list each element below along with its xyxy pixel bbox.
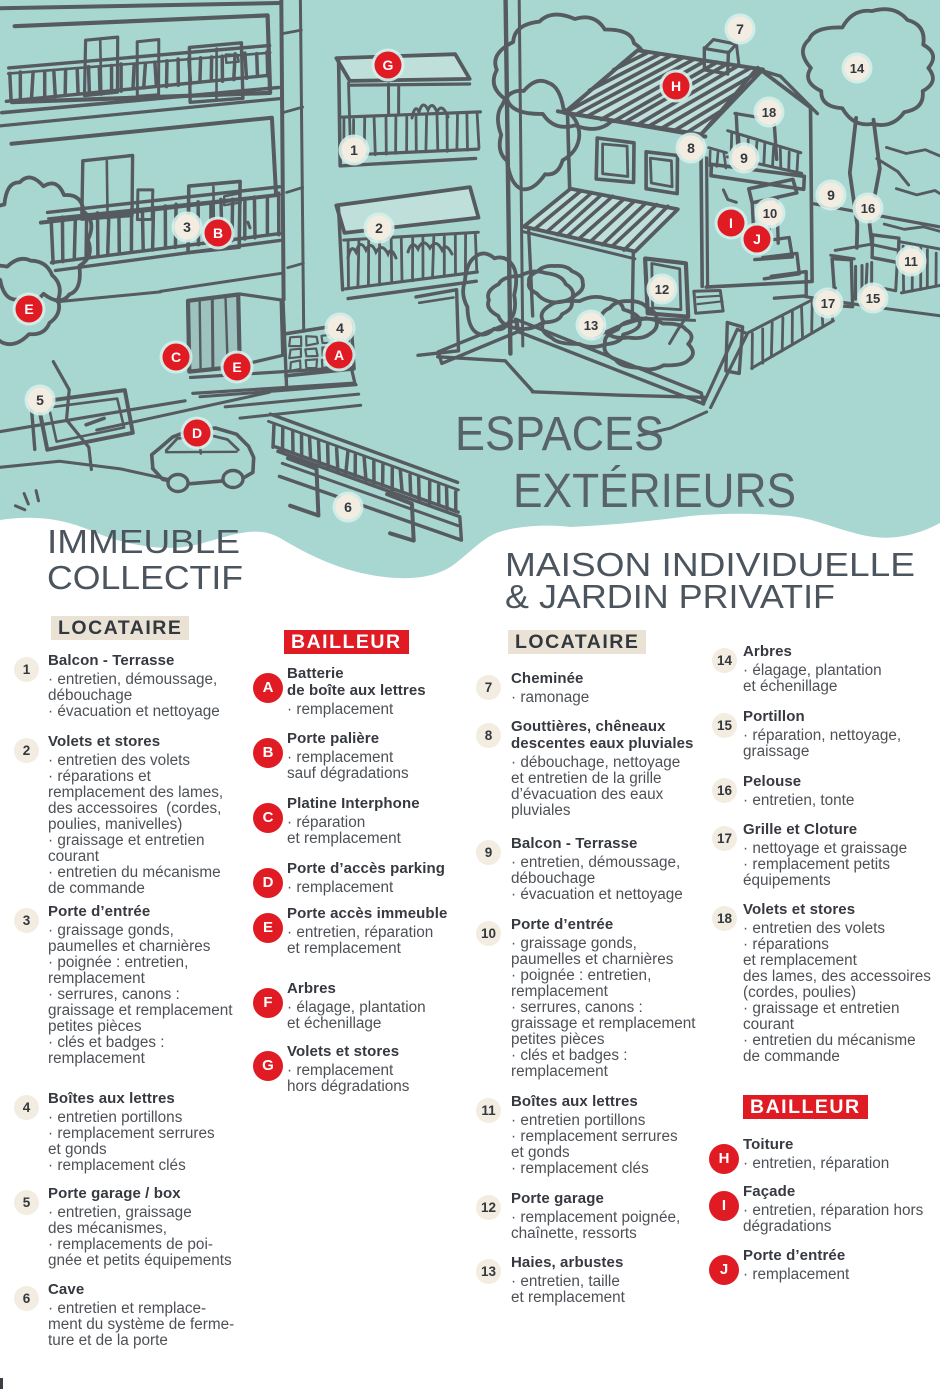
- svg-text:10: 10: [763, 206, 777, 221]
- svg-text:J: J: [753, 231, 761, 247]
- svg-text:11: 11: [904, 254, 918, 269]
- svg-text:4: 4: [336, 320, 344, 336]
- svg-text:18: 18: [762, 105, 776, 120]
- svg-text:E: E: [232, 359, 241, 375]
- svg-text:I: I: [729, 215, 733, 231]
- svg-text:15: 15: [866, 291, 880, 306]
- svg-text:ESPACES: ESPACES: [455, 408, 664, 461]
- svg-text:9: 9: [827, 187, 835, 203]
- svg-text:9: 9: [740, 150, 748, 166]
- svg-text:13: 13: [584, 318, 598, 333]
- svg-text:8: 8: [687, 140, 695, 156]
- svg-text:E: E: [24, 301, 33, 317]
- svg-text:A: A: [334, 347, 344, 363]
- svg-text:G: G: [383, 57, 394, 73]
- svg-text:17: 17: [821, 296, 835, 311]
- svg-text:7: 7: [736, 21, 744, 37]
- svg-text:6: 6: [344, 499, 352, 515]
- svg-text:1: 1: [350, 142, 358, 158]
- svg-text:5: 5: [36, 392, 44, 408]
- svg-text:3: 3: [183, 219, 191, 235]
- svg-text:2: 2: [375, 220, 383, 236]
- svg-text:B: B: [213, 225, 223, 241]
- svg-text:C: C: [171, 349, 181, 365]
- svg-text:H: H: [671, 78, 681, 94]
- svg-text:12: 12: [655, 282, 669, 297]
- svg-text:EXTÉRIEURS: EXTÉRIEURS: [513, 465, 796, 518]
- svg-text:D: D: [192, 425, 202, 441]
- svg-text:14: 14: [850, 61, 865, 76]
- svg-text:16: 16: [861, 201, 875, 216]
